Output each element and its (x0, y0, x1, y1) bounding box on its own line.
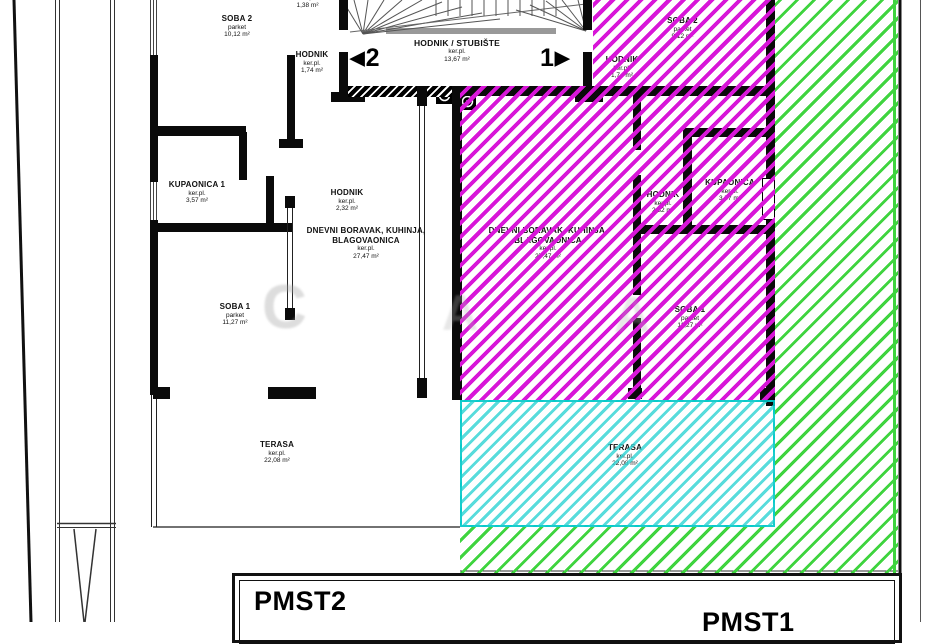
floor-plan-page: { "watermark": {"letters": ["C", "A", "A… (0, 0, 935, 622)
green-zone-edge-line (893, 0, 896, 573)
room-label-top-cut: ker.pl. 1,38 m² (280, 0, 335, 10)
left-arrow-icon: ◀ (350, 49, 365, 68)
wall-segment (158, 126, 246, 136)
wall-segment (279, 139, 303, 148)
window-segment (150, 182, 157, 220)
level-marker-1: 1 ▶ (540, 46, 570, 71)
pmst2-label: PMST2 (254, 586, 347, 617)
room-label-hodnik-left-top: HODNIK ker.pl. 1,74 m² (283, 50, 341, 75)
level-marker-2: ◀ 2 (350, 46, 380, 71)
terrace-right-hatch-cyan (460, 400, 775, 527)
wall-segment (285, 308, 295, 320)
room-label-kupaonica1: KUPAONICA 1 ker.pl. 3,57 m² (157, 180, 237, 205)
wall-segment (583, 0, 592, 30)
wall-segment (287, 208, 293, 308)
room-label-stubiste: HODNIK / STUBIŠTE ker.pl. 13,67 m² (398, 38, 516, 64)
insulated-wall-segment (348, 86, 460, 97)
wall-segment (150, 55, 158, 182)
staircase-drawing (344, 0, 586, 34)
wall-segment (417, 378, 427, 398)
room-label-terasa-left: TERASA ker.pl. 22,08 m² (232, 440, 322, 465)
wall-segment (268, 387, 316, 399)
right-arrow-icon: ▶ (555, 49, 570, 68)
wall-segment (339, 0, 348, 30)
room-label-soba1-left: SOBA 1 parket 11,27 m² (190, 302, 280, 327)
wall-segment (417, 86, 427, 106)
window-segment (150, 0, 157, 55)
room-label-dnevni-left: DNEVNI BORAVAK, KUHINJA, BLAGOVAONICA ke… (296, 226, 436, 261)
room-label-soba2-left: SOBA 2 parket 10,12 m² (192, 14, 282, 39)
wall-segment (153, 223, 293, 232)
pmst1-label: PMST1 (702, 607, 795, 638)
wall-segment (153, 387, 170, 399)
wall-segment (150, 220, 158, 395)
wall-segment (151, 395, 157, 527)
wall-segment (285, 196, 295, 208)
room-label-hodnik-left: HODNIK ker.pl. 2,32 m² (317, 188, 377, 213)
wall-segment (239, 132, 247, 180)
